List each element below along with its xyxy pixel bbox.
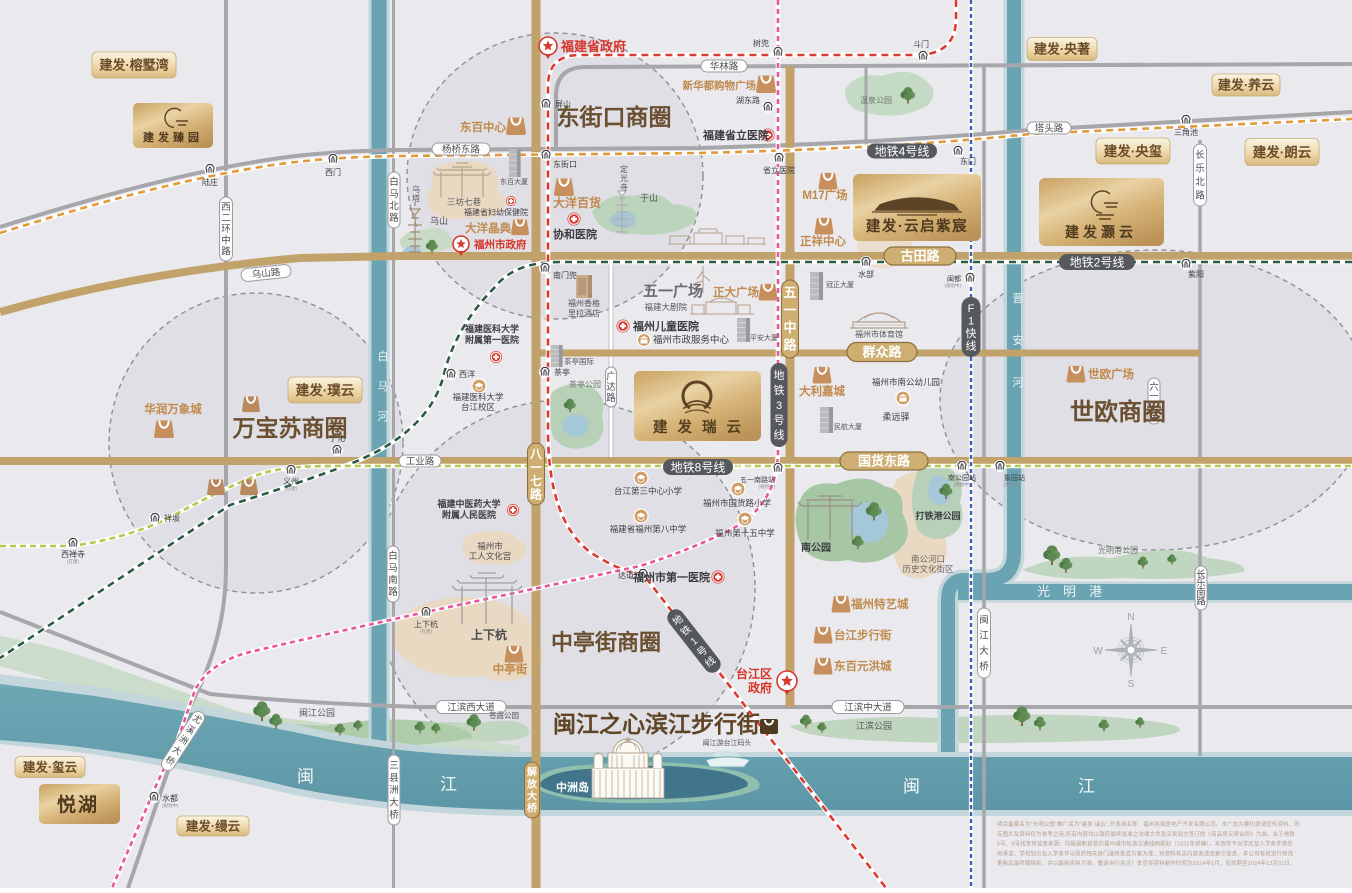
svg-text:东百元洪城: 东百元洪城 [834, 659, 892, 673]
svg-text:桥: 桥 [389, 809, 399, 821]
svg-text:义州: 义州 [283, 477, 299, 486]
svg-text:上下杭: 上下杭 [414, 619, 438, 629]
svg-text:福州市政府: 福州市政府 [473, 238, 527, 251]
svg-text:路: 路 [1196, 596, 1206, 608]
svg-text:冠正大厦: 冠正大厦 [826, 280, 854, 289]
svg-text:工人文化宫: 工人文化宫 [469, 551, 512, 561]
svg-text:二: 二 [221, 213, 231, 224]
svg-text:(在建): (在建) [420, 628, 432, 635]
svg-text:台江步行街: 台江步行街 [834, 628, 892, 642]
svg-text:马: 马 [378, 380, 389, 393]
svg-text:茶亭国际: 茶亭国际 [564, 356, 594, 366]
svg-text:建发·璞云: 建发·璞云 [295, 382, 355, 398]
svg-text:河: 河 [378, 410, 389, 423]
svg-text:地铁2号线: 地铁2号线 [1070, 255, 1125, 269]
svg-text:中亭街商圈: 中亭街商圈 [551, 630, 661, 655]
svg-text:南: 南 [388, 574, 398, 586]
svg-text:三角池: 三角池 [1174, 127, 1198, 137]
svg-text:福州市国货路小学: 福州市国货路小学 [703, 498, 772, 508]
svg-text:福建医科大学: 福建医科大学 [464, 323, 519, 334]
svg-text:世欧广场: 世欧广场 [1088, 367, 1134, 381]
svg-text:河: 河 [1013, 376, 1024, 389]
svg-text:福州市南公幼儿园: 福州市南公幼儿园 [872, 377, 940, 387]
svg-text:长: 长 [1195, 149, 1205, 161]
svg-text:北: 北 [389, 201, 399, 212]
svg-text:光: 光 [620, 173, 628, 183]
svg-text:有图片及资料仅为参考之用,所有内容均以政府最终批准之法律文件: 有图片及资料仅为参考之用,所有内容均以政府最终批准之法律文件及买卖双方签订的《商… [997, 830, 1295, 838]
svg-text:闽: 闽 [297, 767, 314, 786]
svg-text:大: 大 [527, 789, 537, 802]
svg-text:附属第一医院: 附属第一医院 [465, 334, 519, 345]
svg-text:树兜: 树兜 [753, 38, 769, 48]
svg-text:大: 大 [389, 797, 399, 809]
svg-text:建发臻园: 建发臻园 [143, 130, 203, 144]
svg-text:F: F [968, 303, 975, 315]
svg-text:东门: 东门 [960, 156, 976, 166]
svg-text:地铁4号线: 地铁4号线 [875, 144, 930, 158]
svg-text:福州市体育馆: 福州市体育馆 [855, 329, 903, 339]
svg-text:闽: 闽 [903, 777, 920, 796]
svg-text:世欧商圈: 世欧商圈 [1070, 398, 1166, 426]
svg-text:寺: 寺 [620, 183, 628, 192]
svg-text:群众路: 群众路 [862, 345, 902, 360]
svg-text:建发·朗云: 建发·朗云 [1252, 144, 1312, 160]
svg-text:路: 路 [389, 212, 399, 224]
svg-text:国货东路: 国货东路 [858, 454, 911, 469]
svg-text:福州第十五中学: 福州第十五中学 [715, 528, 775, 538]
svg-text:建发·榕墅湾: 建发·榕墅湾 [99, 58, 168, 73]
svg-text:地: 地 [774, 369, 785, 382]
svg-text:W: W [1093, 646, 1103, 657]
svg-text:柔远驿: 柔远驿 [882, 412, 909, 422]
svg-text:建发瑞云: 建发瑞云 [653, 418, 751, 436]
svg-text:路: 路 [388, 586, 398, 598]
svg-text:3: 3 [776, 400, 782, 412]
svg-text:大: 大 [979, 645, 989, 657]
svg-text:建设中: 建设中 [735, 464, 750, 471]
svg-text:华润万象城: 华润万象城 [144, 402, 202, 416]
svg-text:1: 1 [968, 315, 974, 327]
svg-text:协和医院: 协和医院 [553, 227, 597, 241]
svg-text:工业路: 工业路 [406, 455, 435, 467]
svg-text:正大广场: 正大广场 [713, 285, 759, 299]
svg-text:建发·养云: 建发·养云 [1218, 78, 1274, 93]
svg-text:西门: 西门 [325, 167, 341, 177]
svg-text:洲: 洲 [389, 785, 399, 796]
svg-text:华林路: 华林路 [710, 60, 739, 72]
svg-text:政府: 政府 [748, 680, 772, 695]
svg-text:建发灏云: 建发灏云 [1065, 224, 1137, 240]
svg-text:地铁8号线: 地铁8号线 [671, 460, 726, 474]
svg-text:东街口商圈: 东街口商圈 [557, 104, 672, 130]
svg-text:大利嘉城: 大利嘉城 [799, 384, 845, 398]
svg-text:中: 中 [783, 320, 796, 335]
svg-text:祥坂: 祥坂 [164, 513, 180, 523]
svg-text:东百中心: 东百中心 [460, 120, 506, 134]
svg-text:于山: 于山 [640, 193, 658, 203]
svg-text:福建省立医院: 福建省立医院 [702, 128, 769, 142]
svg-text:上下杭: 上下杭 [471, 627, 507, 642]
svg-text:南门兜: 南门兜 [553, 270, 577, 280]
svg-text:大洋百货: 大洋百货 [553, 195, 601, 210]
svg-text:路: 路 [1195, 189, 1205, 201]
svg-text:(规划中): (规划中) [162, 802, 179, 809]
svg-text:县: 县 [389, 773, 399, 784]
svg-text:白: 白 [378, 349, 389, 363]
svg-text:项目备案名为"光明公馆"推广名为"建发·瑞云",开发商名称：: 项目备案名为"光明公馆"推广名为"建发·瑞云",开发商名称：福州兆禧房地产开发有… [997, 820, 1300, 828]
svg-text:桥: 桥 [527, 801, 538, 814]
svg-text:(在建): (在建) [285, 485, 297, 492]
svg-text:乌: 乌 [412, 184, 420, 194]
svg-text:何承诺，学校划分及入学条件以政府相关部门最终批准方案为准，对: 何承诺，学校划分及入学条件以政府相关部门最终批准方案为准，对资料有关内容表述及索… [997, 849, 1294, 857]
svg-text:福建医科大学: 福建医科大学 [452, 392, 504, 402]
svg-text:中亭街: 中亭街 [493, 662, 528, 676]
svg-text:湖东路: 湖东路 [736, 95, 760, 105]
svg-text:省立医院: 省立医院 [763, 165, 795, 175]
svg-text:古田路: 古田路 [900, 249, 940, 264]
svg-text:西禅寺: 西禅寺 [61, 549, 85, 559]
svg-text:福州市第一医院: 福州市第一医院 [632, 570, 710, 584]
svg-text:路: 路 [530, 486, 543, 501]
svg-text:茶亭公园: 茶亭公园 [569, 379, 601, 389]
svg-text:线: 线 [774, 427, 785, 441]
svg-text:一: 一 [783, 303, 796, 318]
svg-text:五: 五 [783, 285, 796, 300]
svg-text:路: 路 [221, 246, 231, 258]
svg-text:桥: 桥 [979, 660, 989, 672]
svg-text:建发·央著: 建发·央著 [1034, 42, 1090, 57]
svg-text:路: 路 [606, 392, 616, 404]
svg-text:万宝苏商圈: 万宝苏商圈 [233, 415, 348, 441]
svg-text:苍霞公园: 苍霞公园 [489, 710, 519, 720]
svg-text:南公园: 南公园 [801, 541, 831, 554]
svg-text:光 明 港: 光 明 港 [1037, 584, 1102, 599]
svg-text:定: 定 [620, 164, 628, 174]
svg-text:西洋: 西洋 [459, 369, 475, 379]
svg-text:塔头路: 塔头路 [1035, 122, 1064, 134]
svg-text:福州香格: 福州香格 [568, 298, 600, 308]
svg-text:福建中医药大学: 福建中医药大学 [436, 498, 500, 509]
svg-text:E: E [1161, 646, 1168, 657]
svg-text:福州市: 福州市 [477, 541, 503, 551]
svg-text:闽江公园: 闽江公园 [299, 707, 335, 718]
svg-text:闽江游台江码头: 闽江游台江码头 [703, 738, 752, 747]
svg-text:线: 线 [966, 338, 977, 352]
svg-text:茶亭: 茶亭 [554, 367, 570, 377]
svg-text:水都: 水都 [162, 793, 178, 803]
svg-text:晋: 晋 [1013, 292, 1024, 305]
svg-text:(规划中): (规划中) [945, 282, 962, 289]
svg-text:台江第三中心小学: 台江第三中心小学 [614, 486, 683, 496]
svg-text:附属人民医院: 附属人民医院 [442, 509, 496, 520]
svg-text:达: 达 [606, 381, 616, 393]
svg-text:N: N [1127, 612, 1134, 623]
svg-text:福州儿童医院: 福州儿童医院 [632, 319, 699, 333]
svg-text:建发·央玺: 建发·央玺 [1103, 143, 1163, 159]
svg-text:马: 马 [389, 189, 399, 200]
svg-text:江滨中大道: 江滨中大道 [844, 701, 892, 713]
svg-text:水部: 水部 [858, 269, 874, 279]
svg-text:北: 北 [1195, 177, 1205, 188]
svg-text:新华都购物广场: 新华都购物广场 [683, 79, 757, 92]
svg-text:(规划中): (规划中) [1004, 481, 1021, 488]
svg-text:铁: 铁 [774, 384, 785, 397]
svg-text:号: 号 [774, 414, 785, 427]
svg-text:象园站: 象园站 [1004, 473, 1025, 482]
svg-text:广: 广 [606, 371, 616, 383]
svg-text:五一广场: 五一广场 [643, 282, 703, 300]
svg-text:建发·缦云: 建发·缦云 [186, 819, 241, 834]
svg-text:陆庄: 陆庄 [202, 177, 218, 187]
svg-text:历史文化街区: 历史文化街区 [902, 564, 954, 574]
svg-text:打铁港公园: 打铁港公园 [915, 510, 960, 521]
svg-text:马: 马 [388, 563, 398, 574]
svg-text:S: S [1128, 679, 1135, 690]
svg-text:江: 江 [1078, 777, 1095, 796]
svg-text:5号、8号线宣传信息来源：均据最新获批的福州城市轨道交通线网: 5号、8号线宣传信息来源：均据最新获批的福州城市轨道交通线网规划（2021年修编… [997, 840, 1293, 848]
svg-text:江: 江 [440, 775, 457, 794]
svg-text:福州特艺城: 福州特艺城 [850, 597, 909, 611]
svg-text:悦湖: 悦湖 [57, 793, 99, 816]
svg-text:三坊七巷: 三坊七巷 [447, 197, 482, 207]
svg-text:福建大剧院: 福建大剧院 [644, 302, 687, 312]
svg-text:一: 一 [530, 460, 542, 474]
svg-text:(在建): (在建) [67, 558, 79, 565]
svg-text:(规划中): (规划中) [954, 481, 971, 488]
svg-text:平安大厦: 平安大厦 [750, 333, 778, 342]
svg-text:放: 放 [526, 777, 538, 790]
svg-text:江滨公园: 江滨公园 [856, 720, 892, 731]
svg-text:七: 七 [530, 474, 542, 488]
svg-text:民航大厦: 民航大厦 [834, 422, 862, 431]
svg-text:建发·云启紫宸: 建发·云启紫宸 [866, 217, 968, 235]
svg-text:福建省政府: 福建省政府 [560, 39, 626, 54]
svg-text:解: 解 [527, 765, 537, 778]
svg-text:乌山: 乌山 [430, 215, 448, 226]
svg-text:温泉公园: 温泉公园 [860, 95, 892, 105]
svg-text:南公河口: 南公河口 [911, 554, 945, 564]
svg-text:福建省福州第八中学: 福建省福州第八中学 [610, 524, 687, 534]
svg-text:光明港公园: 光明港公园 [1098, 545, 1138, 555]
svg-text:闽江之心滨江步行街: 闽江之心滨江步行街 [553, 711, 760, 737]
svg-text:东街口: 东街口 [553, 159, 577, 169]
svg-text:(规划中): (规划中) [759, 483, 776, 490]
svg-text:台江区: 台江区 [736, 666, 772, 681]
svg-text:台江校区: 台江校区 [461, 402, 496, 412]
svg-text:M17广场: M17广场 [802, 188, 848, 202]
svg-text:正祥中心: 正祥中心 [800, 234, 846, 248]
svg-text:南公园站: 南公园站 [948, 473, 976, 482]
svg-text:福建省妇幼保健院: 福建省妇幼保健院 [464, 207, 528, 217]
svg-text:三: 三 [389, 760, 399, 771]
svg-text:东百大厦: 东百大厦 [500, 177, 528, 186]
svg-text:五一南路站: 五一南路站 [740, 475, 775, 484]
svg-text:安: 安 [1013, 333, 1024, 347]
svg-text:快: 快 [966, 327, 977, 340]
svg-text:西: 西 [221, 202, 231, 213]
svg-text:大洋晶典: 大洋晶典 [465, 221, 511, 235]
svg-text:环: 环 [221, 224, 231, 235]
svg-text:建发·玺云: 建发·玺云 [23, 760, 78, 775]
svg-text:中洲岛: 中洲岛 [556, 780, 589, 794]
svg-text:江: 江 [979, 630, 989, 641]
svg-text:达道: 达道 [618, 570, 634, 580]
svg-text:闽: 闽 [979, 614, 989, 626]
svg-text:斗门: 斗门 [913, 39, 929, 49]
svg-text:中: 中 [221, 234, 231, 246]
svg-text:八: 八 [529, 447, 543, 461]
svg-text:白: 白 [389, 176, 399, 188]
svg-text:里拉酒店: 里拉酒店 [568, 308, 600, 318]
svg-text:杨桥东路: 杨桥东路 [442, 143, 481, 155]
svg-text:路: 路 [783, 338, 797, 353]
svg-text:闽都: 闽都 [947, 275, 961, 283]
svg-text:白: 白 [388, 550, 398, 562]
svg-text:紫阳: 紫阳 [1188, 270, 1204, 279]
svg-text:福州市政服务中心: 福州市政服务中心 [653, 334, 730, 346]
svg-text:更新及最终解释权。并以最新资料为准。敬请自行关注！本宣传资料: 更新及最终解释权。并以最新资料为准。敬请自行关注！本宣传资料制作时间为2024年… [997, 859, 1296, 867]
svg-text:塔: 塔 [412, 193, 420, 203]
svg-text:乐: 乐 [1195, 162, 1205, 174]
